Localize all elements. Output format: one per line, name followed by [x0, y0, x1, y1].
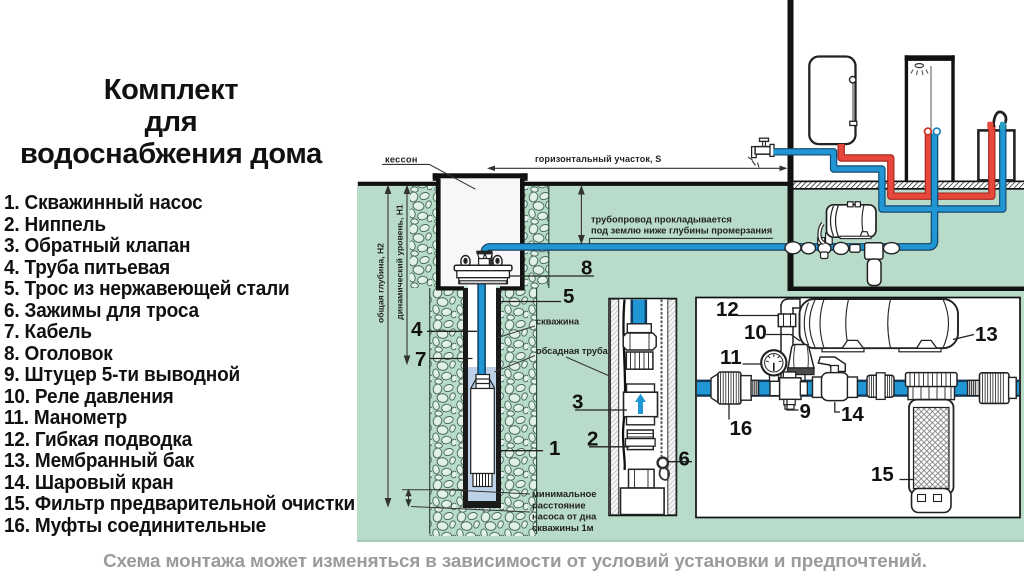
svg-text:обсадная труба: обсадная труба [536, 346, 609, 356]
svg-text:5: 5 [563, 285, 574, 308]
svg-text:кессон: кессон [385, 155, 418, 165]
svg-text:трубопровод прокладывается: трубопровод прокладывается [591, 215, 732, 225]
svg-text:горизонтальный участок, S: горизонтальный участок, S [535, 154, 661, 164]
svg-text:9: 9 [800, 400, 811, 423]
svg-text:14: 14 [841, 403, 864, 426]
svg-text:расстояние: расстояние [532, 499, 586, 510]
svg-text:динамический уровень, Н1: динамический уровень, Н1 [395, 204, 405, 320]
svg-text:общая глубина, Н2: общая глубина, Н2 [376, 243, 386, 323]
svg-text:4: 4 [411, 318, 423, 341]
svg-text:7: 7 [415, 348, 426, 371]
svg-text:под землю ниже глубины промерз: под землю ниже глубины промерзания [591, 226, 772, 236]
svg-text:насоса от дна: насоса от дна [532, 511, 597, 522]
svg-text:скважина: скважина [536, 317, 580, 327]
svg-text:6: 6 [679, 448, 690, 471]
svg-text:скважины 1м: скважины 1м [532, 522, 594, 533]
svg-text:12: 12 [716, 298, 739, 321]
svg-text:10: 10 [744, 321, 767, 344]
svg-text:15: 15 [871, 463, 894, 486]
svg-text:16: 16 [730, 417, 753, 440]
svg-text:13: 13 [975, 323, 998, 346]
svg-text:1: 1 [549, 437, 560, 460]
svg-text:минимальное: минимальное [532, 488, 596, 499]
svg-text:11: 11 [720, 346, 742, 369]
